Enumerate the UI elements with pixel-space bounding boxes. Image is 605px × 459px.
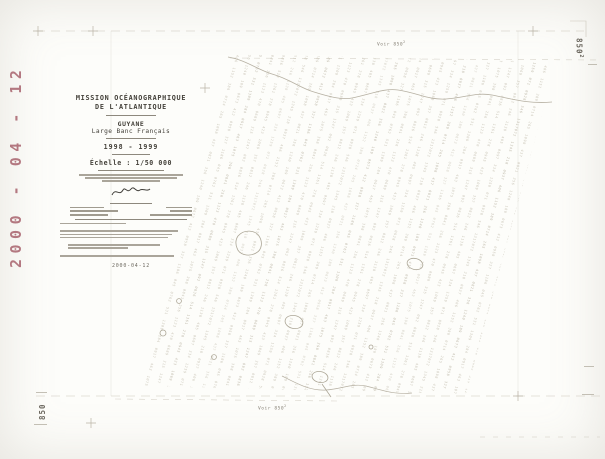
legend-line: [68, 247, 128, 249]
margin-annotation: [588, 64, 597, 65]
area-label: Large Banc Français: [56, 128, 206, 135]
title-block: MISSION OCÉANOGRAPHIQUE DE L'ATLANTIQUE …: [56, 94, 206, 269]
note-line: [60, 223, 126, 225]
margin-annotation: [34, 424, 47, 425]
divider: [106, 115, 156, 116]
fine-print-line: [102, 180, 160, 182]
acquisition-date-stamp: 2000 - 04 - 12: [7, 36, 25, 268]
margin-annotation: [584, 366, 594, 367]
issue-date: 2000-04-12: [56, 263, 206, 269]
note-text: Voir 850: [258, 407, 284, 412]
note-superscript: 2: [403, 40, 406, 44]
table-row: [70, 214, 192, 216]
adjoining-sheet-note-bottom: Voir 8502: [258, 404, 287, 412]
scale-label: Échelle : 1/50 000: [56, 159, 206, 167]
legend-line: [68, 244, 160, 246]
mission-title-line1: MISSION OCÉANOGRAPHIQUE: [56, 94, 206, 103]
sheet-number-top-right: 8502: [575, 38, 585, 59]
divider: [112, 154, 150, 155]
divider: [98, 170, 164, 171]
margin-annotation: [582, 394, 594, 395]
sheet-number-text: 850: [575, 38, 584, 55]
divider: [75, 219, 187, 220]
sheet-number-bottom-left: 850: [38, 403, 47, 420]
adjoining-sheet-note-top: Voir 8502: [377, 40, 406, 48]
campaign-years: 1998 - 1999: [56, 143, 206, 151]
equipment-table: [56, 207, 206, 216]
table-row: [70, 207, 192, 209]
note-line: [60, 237, 168, 239]
note-line: [60, 230, 178, 232]
note-superscript: 2: [284, 404, 287, 408]
mission-title-line2: DE L'ATLANTIQUE: [56, 103, 206, 112]
signature: [109, 185, 153, 199]
reference-line: [60, 255, 174, 257]
fine-print-line: [79, 174, 183, 176]
note-line: [60, 234, 172, 236]
divider: [106, 138, 156, 139]
sheet-number-superscript: 2: [578, 55, 584, 59]
note-text: Voir 850: [377, 43, 403, 48]
sheet-number-text: 850: [38, 403, 47, 420]
margin-annotation: [36, 392, 47, 393]
divider: [110, 203, 152, 204]
sounding-sheet: 072 1345 218 0937 406 1152 389 0714 265 …: [0, 0, 605, 459]
fine-print-line: [85, 177, 177, 179]
region-label: GUYANE: [56, 120, 206, 129]
table-row: [70, 210, 192, 212]
